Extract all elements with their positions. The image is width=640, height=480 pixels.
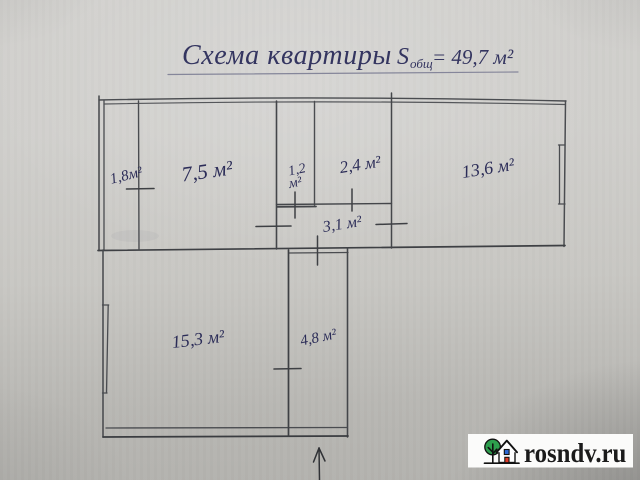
- svg-text:13,6 м²: 13,6 м²: [460, 154, 516, 182]
- svg-text:15,3 м²: 15,3 м²: [171, 326, 227, 352]
- svg-text:4,8 м²: 4,8 м²: [299, 326, 339, 349]
- svg-text:2,4 м²: 2,4 м²: [338, 152, 383, 177]
- svg-text:= 49,7 м²: = 49,7 м²: [432, 45, 514, 69]
- svg-text:3,1 м²: 3,1 м²: [321, 213, 364, 236]
- svg-text:S: S: [397, 44, 409, 70]
- svg-text:7,5 м²: 7,5 м²: [180, 155, 235, 186]
- svg-text:Схема квартиры: Схема квартиры: [182, 40, 392, 71]
- svg-text:общ: общ: [410, 56, 433, 71]
- svg-text:м²: м²: [286, 174, 304, 192]
- svg-text:rosndv.ru: rosndv.ru: [524, 438, 626, 468]
